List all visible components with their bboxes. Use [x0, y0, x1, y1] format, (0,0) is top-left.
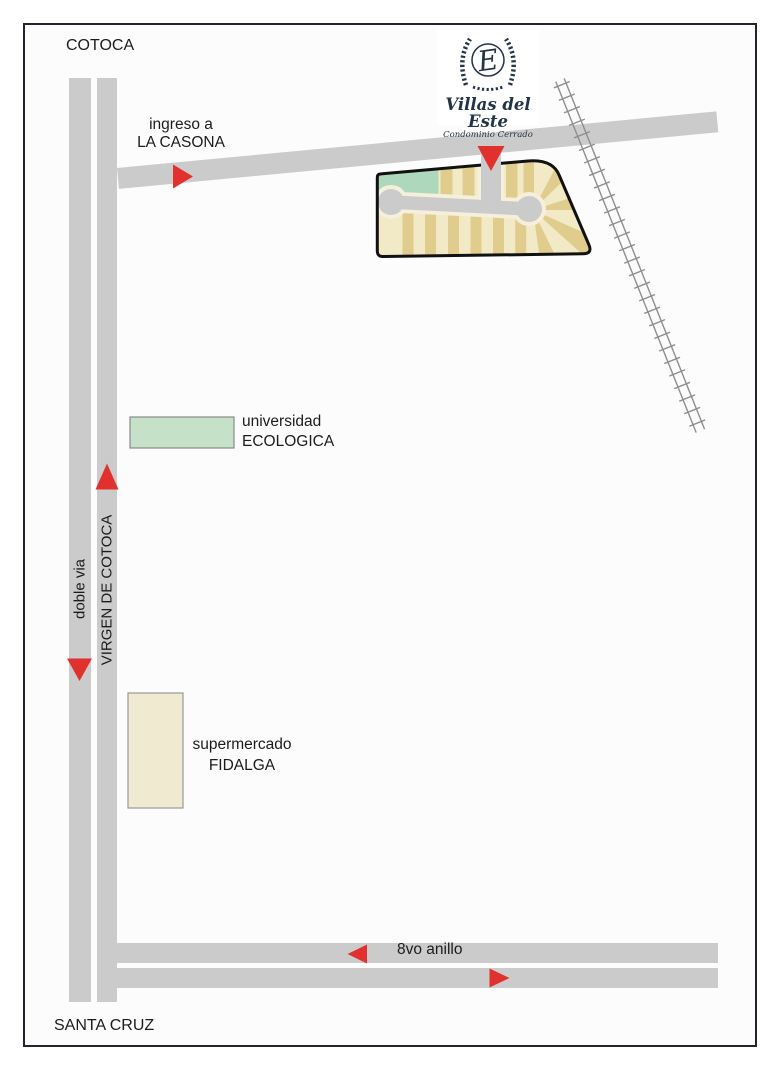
logo-villas-del-este: E Villas del Este Condominio Cerrado — [437, 30, 539, 125]
label-universidad-line1: universidad — [242, 412, 334, 432]
logo-subtitle: Condominio Cerrado — [437, 130, 539, 141]
label-cotoca: COTOCA — [66, 37, 134, 55]
label-8vo-anillo: 8vo anillo — [397, 941, 463, 959]
logo-wreath-icon: E — [437, 30, 539, 92]
logo-name: Villas del Este — [437, 96, 539, 130]
label-supermercado: supermercado FIDALGA — [188, 734, 296, 776]
label-santa-cruz: SANTA CRUZ — [54, 1017, 154, 1035]
label-supermercado-line2: FIDALGA — [188, 755, 296, 776]
label-ingreso-line2: LA CASONA — [133, 134, 229, 152]
label-ingreso-la-casona: ingreso a LA CASONA — [133, 116, 229, 152]
label-doble-via: doble via — [72, 559, 89, 619]
label-virgen-de-cotoca: VIRGEN DE COTOCA — [99, 515, 116, 666]
label-universidad-line2: ECOLOGICA — [242, 432, 334, 452]
label-universidad: universidad ECOLOGICA — [242, 412, 334, 452]
logo-monogram: E — [475, 43, 501, 79]
label-ingreso-line1: ingreso a — [133, 116, 229, 134]
map-frame — [23, 23, 757, 1047]
label-supermercado-line1: supermercado — [188, 734, 296, 755]
